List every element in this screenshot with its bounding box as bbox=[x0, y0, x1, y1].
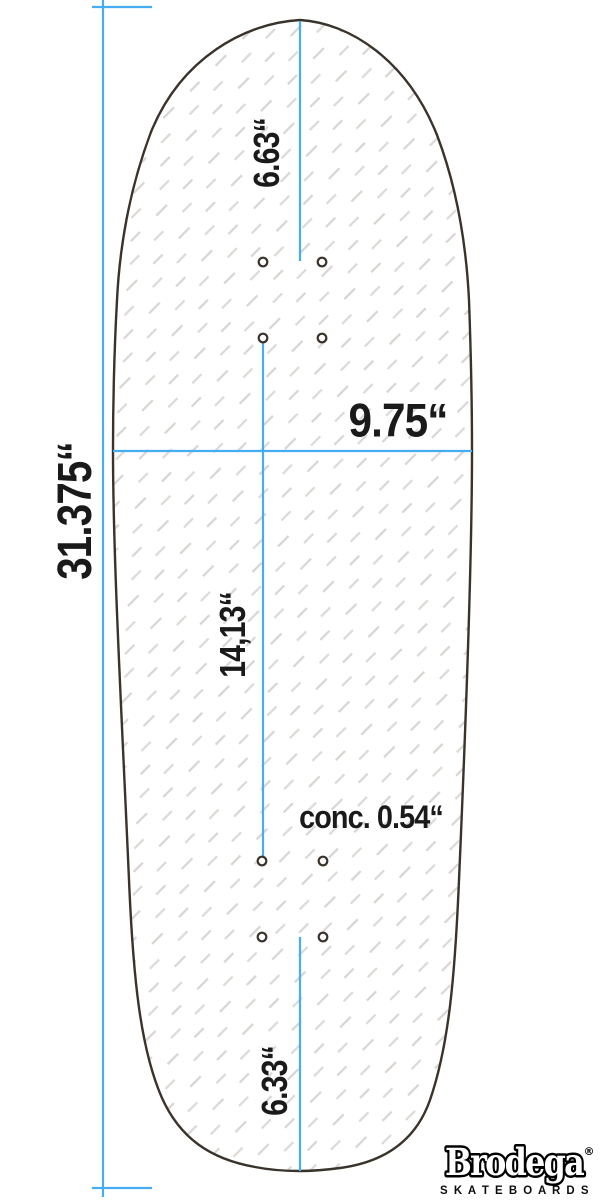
truck-hole bbox=[258, 933, 267, 942]
wheelbase-label: 14,13“ bbox=[215, 592, 251, 678]
total-length-label: 31.375“ bbox=[52, 442, 100, 580]
width-label: 9.75“ bbox=[349, 397, 448, 444]
brand-logo-svg: Brodega ® S K A T E B O A R D S bbox=[438, 1140, 600, 1198]
deck-diagram-svg bbox=[0, 0, 600, 1200]
truck-hole bbox=[259, 334, 268, 343]
brand-name-text: Brodega bbox=[445, 1140, 585, 1184]
deck-outline bbox=[113, 20, 472, 1171]
truck-hole bbox=[319, 857, 328, 866]
deck-technical-drawing: 31.375“ 6.63“ 9.75“ 14,13“ conc. 0.54“ 6… bbox=[0, 0, 600, 1200]
tail-length-label: 6.33“ bbox=[257, 1046, 293, 1116]
truck-hole bbox=[318, 334, 327, 343]
truck-hole bbox=[258, 857, 267, 866]
brand-subtitle-text: S K A T E B O A R D S bbox=[440, 1185, 590, 1197]
nose-length-label: 6.63“ bbox=[249, 118, 285, 188]
truck-hole bbox=[259, 258, 268, 267]
concave-label: conc. 0.54“ bbox=[299, 801, 443, 833]
truck-hole bbox=[318, 258, 327, 267]
registered-trademark-symbol: ® bbox=[584, 1145, 595, 1158]
truck-hole bbox=[319, 933, 328, 942]
